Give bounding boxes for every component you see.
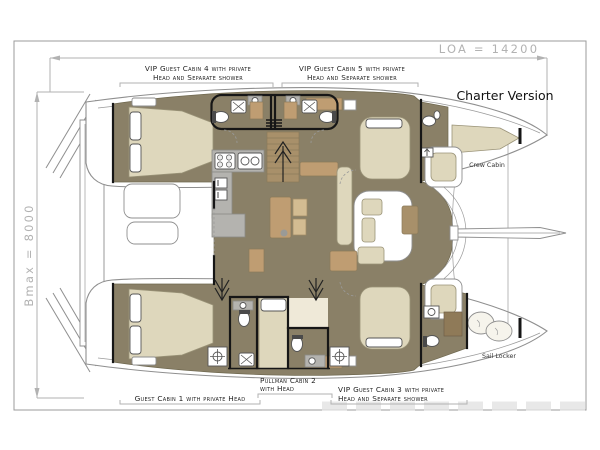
toilet-icon xyxy=(425,336,439,347)
shower-icon xyxy=(302,100,317,113)
sail-locker-label: Sail Locker xyxy=(482,353,516,360)
pullman-bed xyxy=(259,297,288,369)
shower-icon xyxy=(239,353,254,366)
cockpit-bench xyxy=(127,222,178,244)
svg-text:Head and Separate shower: Head and Separate shower xyxy=(307,73,397,82)
charter-version-label: Charter Version xyxy=(456,88,553,103)
sink-icon xyxy=(233,301,253,310)
crew-cabin-label: Crew Cabin xyxy=(469,162,505,169)
stool xyxy=(281,230,288,237)
svg-text:VIP Guest Cabin 4 with private: VIP Guest Cabin 4 with private xyxy=(145,64,251,73)
sink-icon xyxy=(305,355,325,367)
svg-text:with Head: with Head xyxy=(260,384,294,393)
salon-stairs xyxy=(267,132,299,182)
label-vip4: VIP Guest Cabin 4 with private Head and … xyxy=(120,64,273,87)
chair xyxy=(293,219,306,235)
label-guest1: Guest Cabin 1 with private Head xyxy=(120,394,260,404)
deck-hatch-icon xyxy=(208,347,227,366)
svg-text:VIP Guest Cabin 5 with private: VIP Guest Cabin 5 with private xyxy=(299,64,405,73)
svg-text:Head and Separate shower: Head and Separate shower xyxy=(153,73,243,82)
cabinet xyxy=(444,312,462,336)
chair xyxy=(293,199,307,216)
bmax-label: Bmax = 8000 xyxy=(22,203,36,306)
pullman-floor xyxy=(289,298,328,327)
catamaran-deck-plan: LOA = 14200 Bmax = 8000 xyxy=(0,0,600,450)
deck-hatch-icon xyxy=(330,347,349,366)
bowsprit xyxy=(450,226,566,240)
svg-text:Guest Cabin 1 with private Hea: Guest Cabin 1 with private Head xyxy=(135,394,246,403)
loa-label: LOA = 14200 xyxy=(439,42,539,56)
bench xyxy=(249,249,264,272)
dining-table xyxy=(270,197,291,238)
cabinet xyxy=(250,102,263,119)
deck-plan-page: LOA = 14200 Bmax = 8000 xyxy=(0,0,600,450)
cabin1-hull-window xyxy=(132,357,156,365)
bmax-dimension: Bmax = 8000 xyxy=(22,92,84,398)
cabinet xyxy=(284,102,297,119)
sink-double-icon xyxy=(238,153,262,169)
shower-icon xyxy=(231,100,246,113)
cabin4-hull-window xyxy=(132,98,156,106)
svg-text:VIP Guest Cabin 3 with private: VIP Guest Cabin 3 with private xyxy=(338,385,444,394)
label-vip3: VIP Guest Cabin 3 with private Head and … xyxy=(331,385,467,404)
svg-text:Head and Separate shower: Head and Separate shower xyxy=(338,394,428,403)
toilet-icon xyxy=(423,116,436,126)
cockpit-table xyxy=(124,184,180,218)
label-pullman2: Pullman Cabin 2 with Head xyxy=(258,376,332,398)
stove-icon xyxy=(215,153,235,169)
label-vip5: VIP Guest Cabin 5 with private Head and … xyxy=(282,64,418,87)
